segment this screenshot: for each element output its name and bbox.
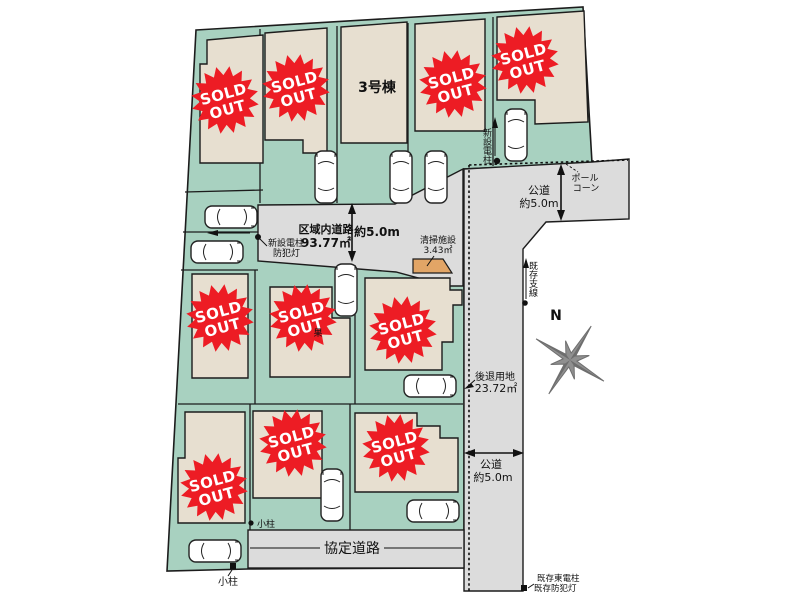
car-icon (321, 469, 343, 521)
car-icon (425, 151, 447, 203)
existing-pole-marker (521, 585, 527, 591)
public-road-right-label-2: 約5.0m (473, 470, 512, 484)
cleaning-facility-label-1: 清掃施設 (420, 234, 456, 246)
car-icon (335, 264, 357, 316)
pole-cone-label-1: ポール (571, 173, 598, 184)
cleaning-facility-label-2: 3.43㎡ (423, 245, 452, 256)
car-icon (407, 500, 459, 522)
small-post-top-label: 小柱 (257, 518, 275, 530)
existing-security-light-label: 既存防犯灯 (534, 583, 577, 594)
existing-tepco-pole-label: 既存東電柱 (537, 573, 580, 584)
district-road-name: 区域内道路 (299, 222, 355, 236)
building-3-label: 3号棟 (358, 79, 397, 96)
small-post-dot (248, 520, 253, 525)
car-icon (189, 540, 241, 562)
lot7-basin-marker: 果 (313, 328, 322, 339)
new-pole-light-label-1: 新設電柱 (268, 237, 304, 249)
car-icon (404, 375, 456, 397)
public-road-top-label-1: 公道 (528, 183, 550, 197)
support-line-dot (522, 300, 528, 306)
pole-cone-label-2: コーン (573, 184, 600, 194)
car-icon (505, 109, 527, 161)
district-road-area: 93.77㎡ (301, 235, 351, 250)
compass (515, 305, 625, 415)
new-pole-light-label-2: 防犯灯 (273, 247, 300, 259)
car-icon (191, 241, 243, 263)
small-post-marker (230, 563, 236, 569)
car-icon (390, 151, 412, 203)
existing-support-line-label: 既存支線 (527, 261, 538, 297)
agreement-road-label: 協定道路 (324, 541, 380, 557)
car-icon (205, 206, 257, 228)
compass-n-label: N (550, 308, 562, 324)
setback-label-2: 23.72㎡ (475, 382, 518, 395)
site-plan-page: SOLDOUT SOLDOUT SOLDOUT SOLDOUT SOLDOUT … (0, 0, 800, 600)
car-icon (315, 151, 337, 203)
pole-dot (494, 158, 500, 164)
small-post-bottom-label: 小柱 (218, 575, 238, 588)
district-road-width: 約5.0m (354, 224, 400, 239)
public-road-right-label-1: 公道 (480, 457, 502, 471)
public-road-top-label-2: 約5.0m (519, 196, 558, 210)
site-plan-drawing: SOLDOUT SOLDOUT SOLDOUT SOLDOUT SOLDOUT … (0, 0, 800, 600)
new-pole-vertical-label: 新設電柱 (481, 127, 492, 164)
